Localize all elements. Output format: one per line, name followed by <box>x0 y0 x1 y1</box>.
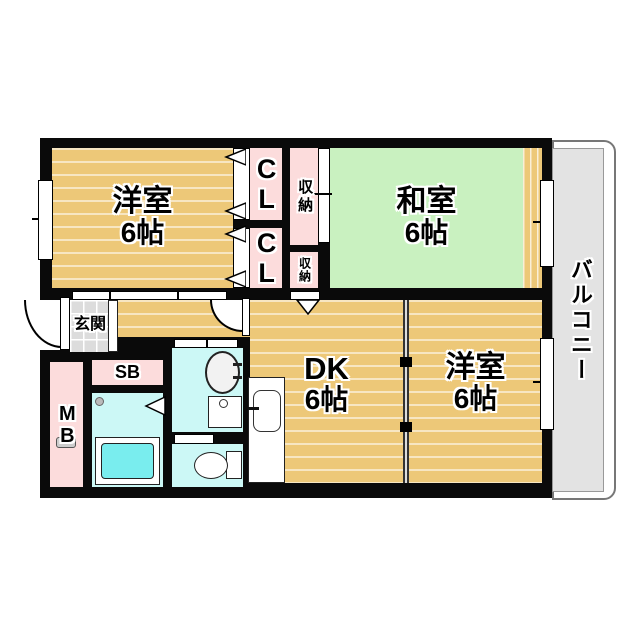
toilet-bowl <box>194 452 228 479</box>
label-shoe-box: SB <box>92 360 163 385</box>
drain-icon <box>219 399 228 408</box>
room-size: 6帖 <box>305 385 349 415</box>
label-balcony: バルコニー <box>556 238 604 402</box>
window-west <box>38 180 53 260</box>
room-size: 6帖 <box>454 384 498 414</box>
room-size: 6帖 <box>405 218 449 248</box>
label-closet-lower: CL <box>250 230 282 286</box>
entrance-door-swing <box>24 300 62 348</box>
basin-faucet-icon <box>233 376 242 379</box>
fusuma-storage-upper <box>318 148 330 243</box>
label-meter-box: MB <box>50 392 83 458</box>
room-name: 洋室 <box>446 352 506 384</box>
room-name: DK <box>304 352 349 385</box>
shower-icon <box>95 397 104 406</box>
window-western-bottom-right <box>540 338 554 430</box>
dk-door-leaf <box>242 298 250 336</box>
bifold-door-icon <box>224 270 246 288</box>
sliding-door-western-tl <box>72 291 227 300</box>
room-size: 6帖 <box>121 218 165 248</box>
room-name: 和室 <box>397 186 457 218</box>
partition-tick <box>400 422 412 432</box>
window-japanese-room <box>540 180 554 267</box>
label-storage-lower: 収納 <box>290 252 318 288</box>
label-japanese-room: 和室 6帖 <box>330 186 523 249</box>
basin-faucet-icon <box>233 363 242 366</box>
label-entrance: 玄関 <box>62 314 118 336</box>
floor-plan: 洋室 6帖 和室 6帖 DK 6帖 洋室 6帖 CL CL 収納 収納 玄関 S… <box>0 0 640 640</box>
storage-door-arrow-icon <box>296 299 320 315</box>
window-tick <box>32 218 39 220</box>
label-western-tl: 洋室 6帖 <box>52 186 233 249</box>
door-toilet <box>174 434 214 444</box>
window-tick <box>533 221 541 223</box>
toilet-tank <box>226 451 242 479</box>
sliding-door-washroom <box>174 339 238 348</box>
room-name: 洋室 <box>113 186 173 218</box>
wash-basin <box>205 351 240 394</box>
label-closet-upper: CL <box>250 150 282 218</box>
label-dk: DK 6帖 <box>250 352 403 416</box>
bathtub <box>101 443 154 479</box>
bifold-door-icon <box>224 148 246 166</box>
label-storage-upper: 収納 <box>290 150 318 243</box>
label-western-br: 洋室 6帖 <box>409 352 542 415</box>
bath-door-icon <box>144 396 166 416</box>
